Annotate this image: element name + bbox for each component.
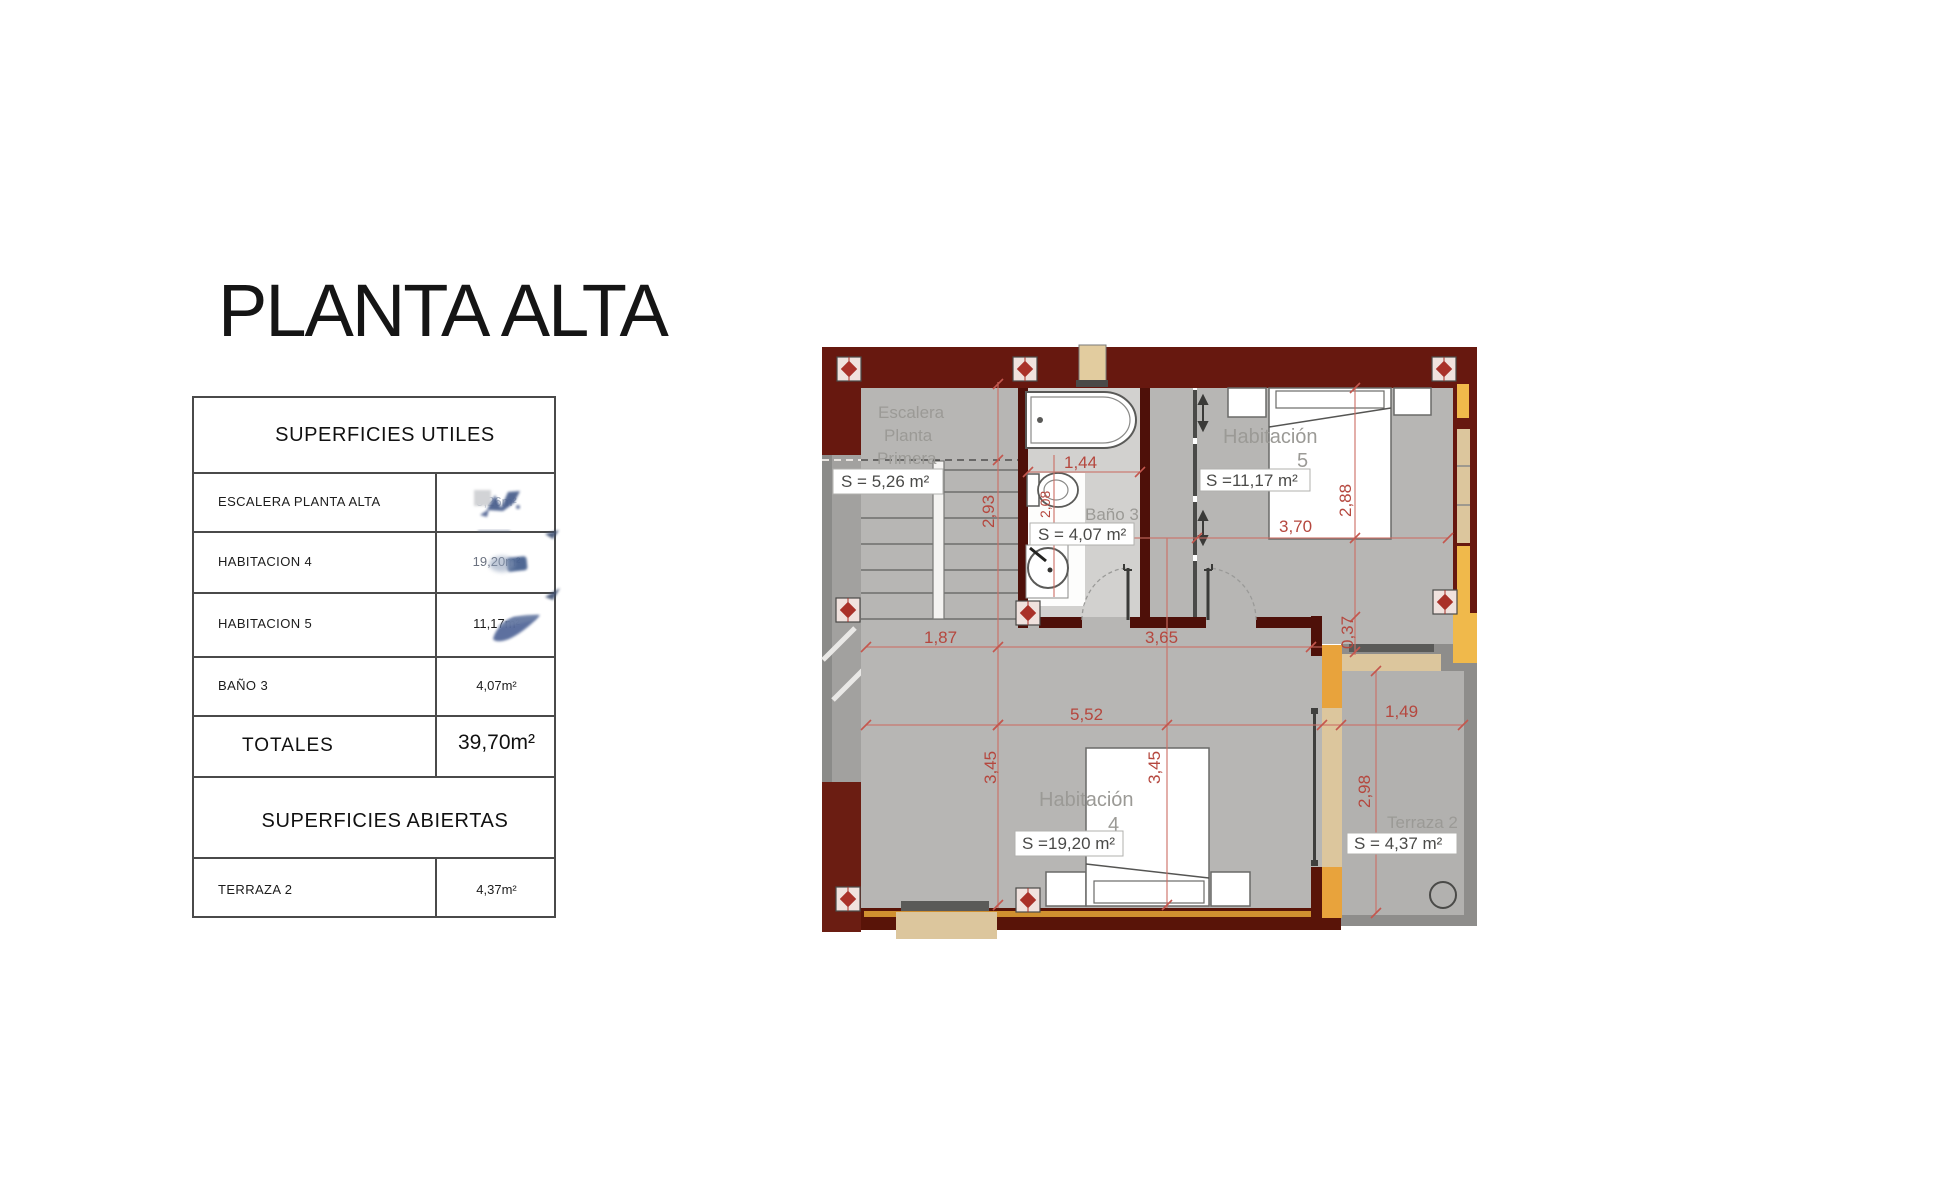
svg-text:Planta: Planta bbox=[884, 426, 933, 445]
svg-text:Terraza 2: Terraza 2 bbox=[1387, 813, 1458, 832]
svg-text:S = 4,07 m²: S = 4,07 m² bbox=[1038, 525, 1127, 544]
svg-text:S = 4,37 m²: S = 4,37 m² bbox=[1354, 834, 1443, 853]
svg-text:Habitación: Habitación bbox=[1039, 789, 1134, 811]
svg-text:Baño 3: Baño 3 bbox=[1085, 505, 1139, 524]
svg-text:2,98: 2,98 bbox=[1355, 775, 1374, 808]
svg-text:1,44: 1,44 bbox=[1064, 453, 1097, 472]
svg-text:S =19,20 m²: S =19,20 m² bbox=[1022, 834, 1115, 853]
svg-text:3,70: 3,70 bbox=[1279, 517, 1312, 536]
svg-text:3,65: 3,65 bbox=[1145, 628, 1178, 647]
svg-text:3,45: 3,45 bbox=[981, 751, 1000, 784]
svg-text:2,93: 2,93 bbox=[979, 495, 998, 528]
svg-text:5,52: 5,52 bbox=[1070, 705, 1103, 724]
svg-text:2,88: 2,88 bbox=[1336, 484, 1355, 517]
svg-text:1,49: 1,49 bbox=[1385, 702, 1418, 721]
svg-text:Primera: Primera bbox=[877, 449, 937, 468]
svg-text:1,87: 1,87 bbox=[924, 628, 957, 647]
svg-text:0,37: 0,37 bbox=[1338, 616, 1357, 649]
svg-text:3,45: 3,45 bbox=[1145, 751, 1164, 784]
svg-text:2,08: 2,08 bbox=[1037, 491, 1053, 518]
svg-text:Habitación: Habitación bbox=[1223, 426, 1318, 448]
svg-text:S =11,17 m²: S =11,17 m² bbox=[1206, 471, 1298, 490]
svg-text:Escalera: Escalera bbox=[878, 403, 945, 422]
svg-text:S = 5,26 m²: S = 5,26 m² bbox=[841, 472, 930, 491]
